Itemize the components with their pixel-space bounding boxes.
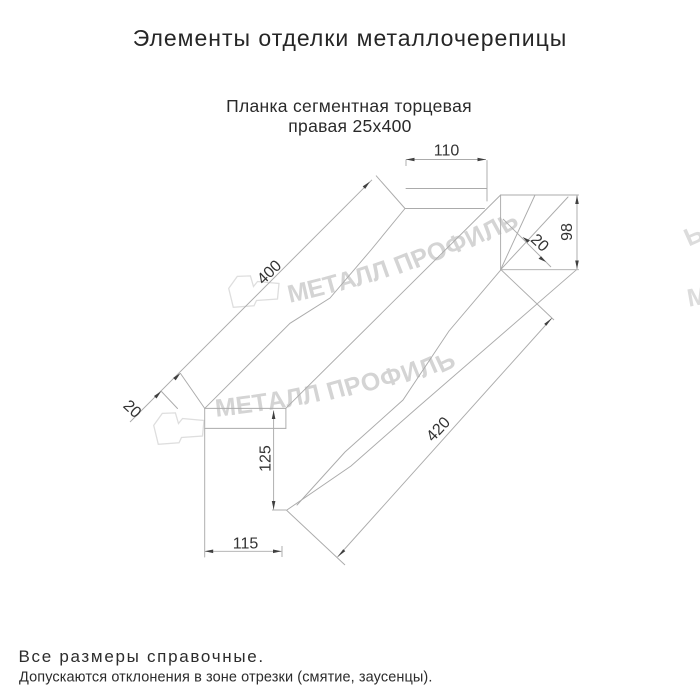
svg-text:Элементы отделки металлочерепи: Элементы отделки металлочерепицы — [133, 25, 568, 51]
svg-text:125: 125 — [258, 445, 275, 472]
svg-text:М: М — [685, 282, 700, 313]
svg-text:420: 420 — [423, 414, 454, 445]
svg-text:20: 20 — [120, 397, 145, 422]
svg-text:110: 110 — [434, 143, 460, 160]
svg-text:400: 400 — [254, 257, 285, 288]
svg-text:20: 20 — [527, 231, 552, 256]
svg-text:Все размеры справочные.: Все размеры справочные. — [19, 647, 265, 666]
svg-text:98: 98 — [559, 223, 576, 241]
svg-text:правая 25х400: правая 25х400 — [288, 116, 411, 136]
svg-text:Ь: Ь — [680, 219, 700, 252]
svg-text:Допускаются отклонения в зоне: Допускаются отклонения в зоне отрезки (с… — [19, 670, 432, 686]
svg-text:Планка сегментная торцевая: Планка сегментная торцевая — [226, 96, 472, 116]
svg-text:115: 115 — [233, 536, 259, 553]
